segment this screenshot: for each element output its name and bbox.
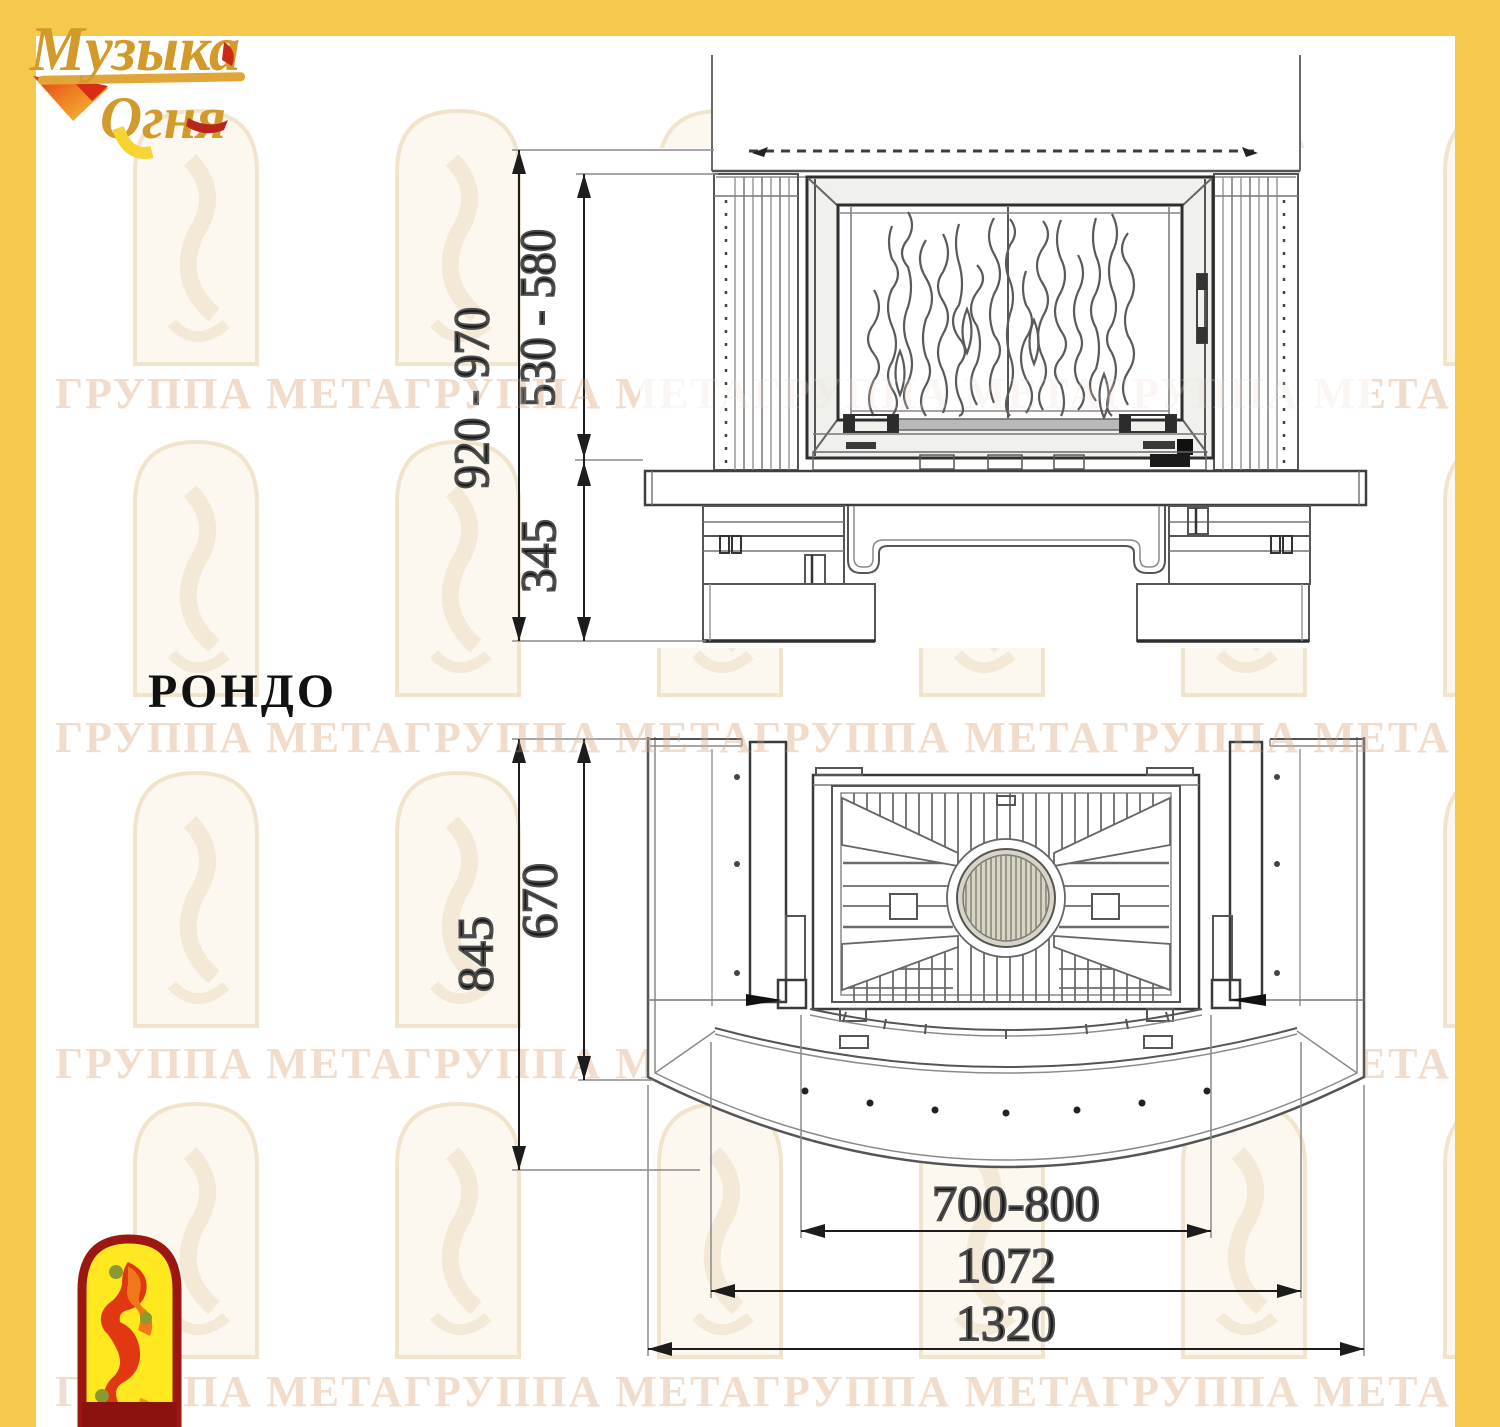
svg-text:345: 345: [510, 519, 566, 593]
svg-text:700-800: 700-800: [932, 1175, 1100, 1231]
svg-text:ГРУППА МЕТАГРУППА МЕТАГРУППА М: ГРУППА МЕТАГРУППА МЕТАГРУППА МЕТАГРУППА …: [55, 1367, 1450, 1416]
svg-text:1072: 1072: [956, 1237, 1056, 1293]
svg-text:Музыка: Музыка: [29, 13, 240, 84]
svg-text:1320: 1320: [956, 1295, 1056, 1351]
svg-text:ГРУППА МЕТАГРУППА МЕТАГРУППА М: ГРУППА МЕТАГРУППА МЕТАГРУППА МЕТАГРУППА …: [55, 369, 1450, 418]
svg-text:670: 670: [511, 863, 567, 939]
svg-text:РОНДО: РОНДО: [148, 665, 337, 718]
svg-text:845: 845: [447, 916, 503, 992]
svg-text:ГРУППА МЕТАГРУППА МЕТАГРУППА М: ГРУППА МЕТАГРУППА МЕТАГРУППА МЕТАГРУППА …: [55, 713, 1450, 762]
